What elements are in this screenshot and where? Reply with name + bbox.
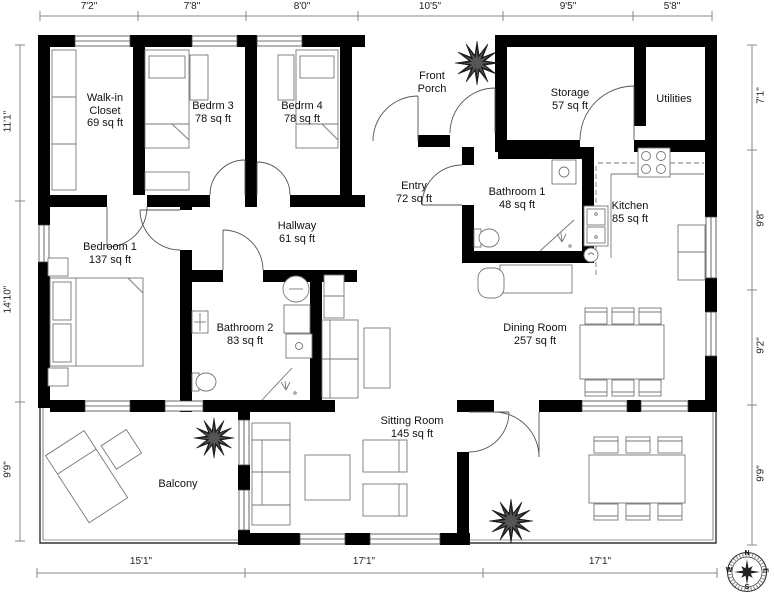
closet-shelves xyxy=(52,50,76,190)
room-label-bedroom-3: Bedrm 378 sq ft xyxy=(168,100,258,125)
compass-south-label: S xyxy=(741,584,753,591)
dim-right-3: 9'2" xyxy=(756,316,767,376)
room-label-bedroom-1: Bedroom 1137 sq ft xyxy=(65,241,155,266)
dim-top-2: 7'8" xyxy=(162,1,222,12)
compass-west-label: W xyxy=(723,567,735,574)
floor-plan-drawing xyxy=(0,0,774,599)
dim-bottom-1: 15'1" xyxy=(111,556,171,567)
room-label-entry: Entry72 sq ft xyxy=(369,180,459,205)
room-label-bedroom-4: Bedrm 478 sq ft xyxy=(257,100,347,125)
room-label-walk-in-closet: Walk-in Closet69 sq ft xyxy=(75,92,135,130)
room-label-bathroom-2: Bathroom 283 sq ft xyxy=(200,322,290,347)
patio-table xyxy=(589,437,685,520)
dim-top-3: 8'0" xyxy=(272,1,332,12)
dining-table xyxy=(580,308,664,396)
room-label-front-porch: Front Porch xyxy=(409,70,455,95)
dim-top-5: 9'5" xyxy=(538,1,598,12)
dim-top-6: 5'8" xyxy=(642,1,702,12)
dim-left-1: 11'1" xyxy=(3,92,14,152)
room-label-kitchen: Kitchen85 sq ft xyxy=(585,200,675,225)
balcony-plant-icon xyxy=(194,418,234,458)
floor-plan: Walk-in Closet69 sq ft Bedrm 378 sq ft B… xyxy=(0,0,774,599)
dim-bottom-2: 17'1" xyxy=(334,556,394,567)
lounge-furniture xyxy=(322,275,390,398)
room-label-hallway: Hallway61 sq ft xyxy=(252,220,342,245)
dim-right-4: 9'9" xyxy=(756,444,767,504)
room-label-utilities: Utilities xyxy=(629,93,719,106)
dining-desk xyxy=(478,265,572,298)
room-label-storage: Storage57 sq ft xyxy=(525,87,615,112)
balcony-lounge-chair xyxy=(46,411,158,523)
dim-left-3: 9'9" xyxy=(3,440,14,500)
porch-plant-icon xyxy=(455,41,499,85)
dim-top-1: 7'2" xyxy=(59,1,119,12)
compass-east-label: E xyxy=(762,565,769,577)
compass-north-label: N xyxy=(741,550,753,557)
dim-top-4: 10'5" xyxy=(400,1,460,12)
patio-plant-icon xyxy=(489,499,533,543)
dim-right-1: 7'1" xyxy=(756,66,767,126)
room-label-dining-room: Dining Room257 sq ft xyxy=(490,322,580,347)
room-label-sitting-room: Sitting Room145 sq ft xyxy=(367,415,457,440)
bedroom4-bed xyxy=(278,50,338,148)
room-label-balcony: Balcony xyxy=(133,478,223,491)
bedroom1-bed xyxy=(48,258,143,386)
dim-bottom-3: 17'1" xyxy=(570,556,630,567)
room-label-bathroom-1: Bathroom 148 sq ft xyxy=(472,186,562,211)
dim-right-2: 9'8" xyxy=(756,189,767,249)
dim-left-2: 14'10" xyxy=(3,270,14,330)
